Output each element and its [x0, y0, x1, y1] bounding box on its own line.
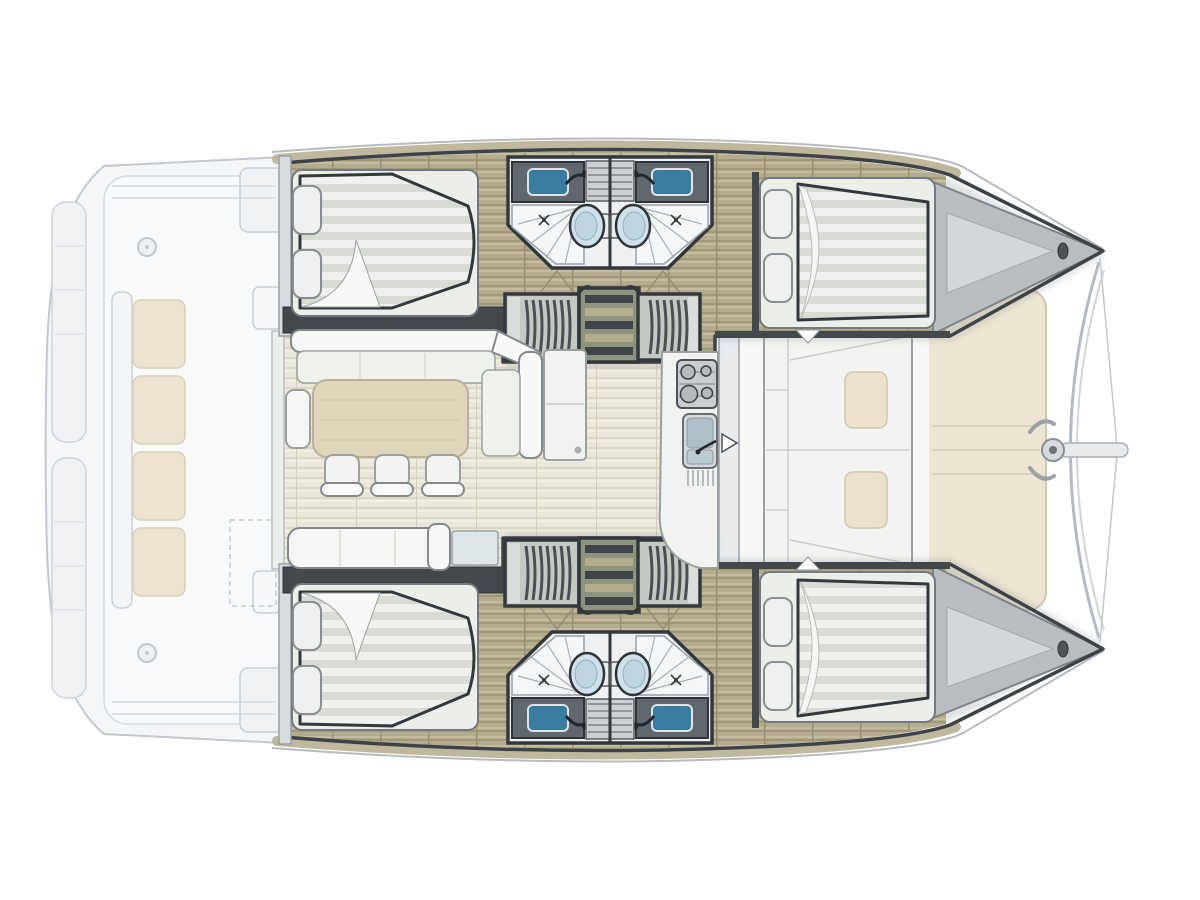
bench-backrest: [112, 292, 132, 608]
settee-back: [288, 528, 448, 568]
bench-cushion: [133, 452, 185, 520]
catamaran-floorplan: [0, 0, 1200, 900]
dining-chairs: [321, 455, 464, 496]
bowsprit-pin: [1049, 446, 1057, 454]
bench-cushion: [133, 376, 185, 444]
side-bench: [286, 390, 310, 448]
burner: [702, 388, 713, 399]
entry-step: [253, 571, 281, 613]
forward-cockpit: [739, 326, 929, 574]
galley-sink: [683, 414, 717, 468]
deck-fitting-dot: [145, 651, 149, 655]
stove: [677, 360, 717, 408]
cooler-panel: [452, 531, 498, 565]
chair: [371, 455, 413, 496]
burner: [681, 386, 698, 403]
seat-cushion: [845, 372, 887, 428]
sofa-back: [291, 330, 503, 352]
burner: [681, 365, 695, 379]
entry-step: [253, 287, 281, 329]
bench-cushion: [133, 528, 185, 596]
faucet-knob: [696, 450, 701, 455]
transom-step: [52, 202, 86, 442]
bench-cushion: [133, 300, 185, 368]
floorplan-page: [0, 0, 1200, 900]
chair: [321, 455, 363, 496]
dining-table: [313, 380, 468, 457]
stern-deck: [46, 157, 287, 743]
deck-fitting-dot: [145, 245, 149, 249]
settee: [288, 524, 498, 570]
burner: [701, 366, 711, 376]
sofa-back-right: [519, 352, 542, 458]
cabinet-knob: [575, 447, 582, 454]
settee-armrest: [428, 524, 450, 570]
cabinet: [544, 350, 586, 460]
sofa-seat-right: [482, 370, 520, 456]
seat-cushion: [845, 472, 887, 528]
transom-step: [52, 458, 86, 698]
galley: [660, 352, 718, 568]
sofa-seat: [297, 351, 495, 383]
forward-bulkhead: [719, 322, 739, 578]
chair: [422, 455, 464, 496]
saloon-aft-door: [272, 331, 284, 569]
bowsprit-pole: [1060, 443, 1128, 457]
